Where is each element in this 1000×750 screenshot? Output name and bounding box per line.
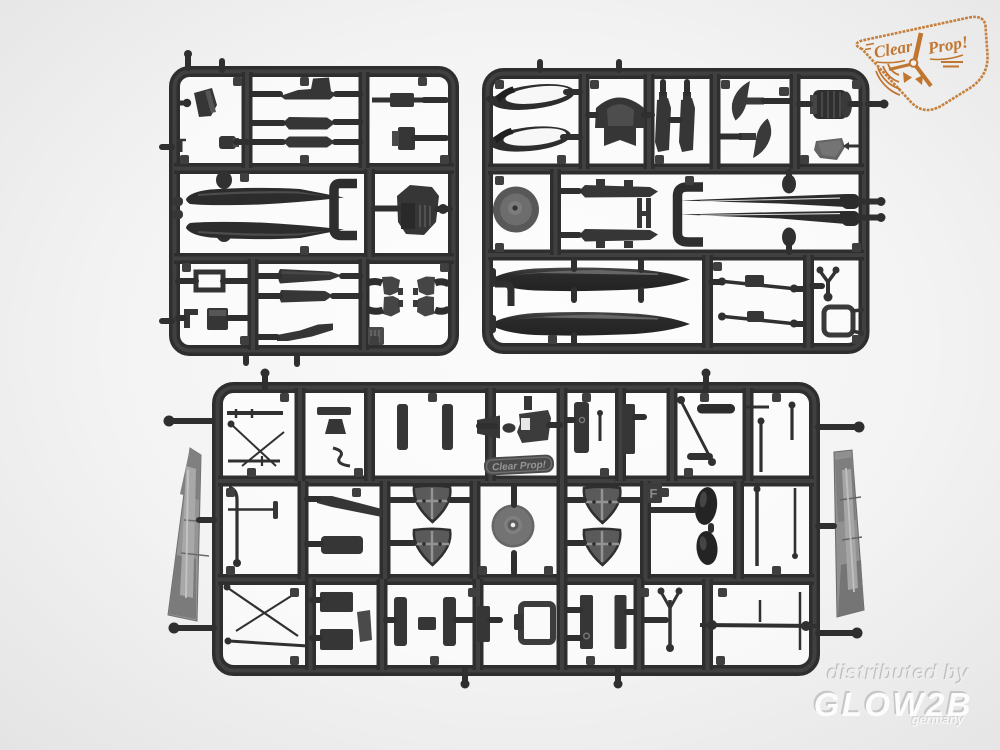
svg-text:F: F xyxy=(650,486,658,501)
svg-text:distributed by: distributed by xyxy=(827,661,970,685)
svg-text:germany: germany xyxy=(911,713,965,727)
